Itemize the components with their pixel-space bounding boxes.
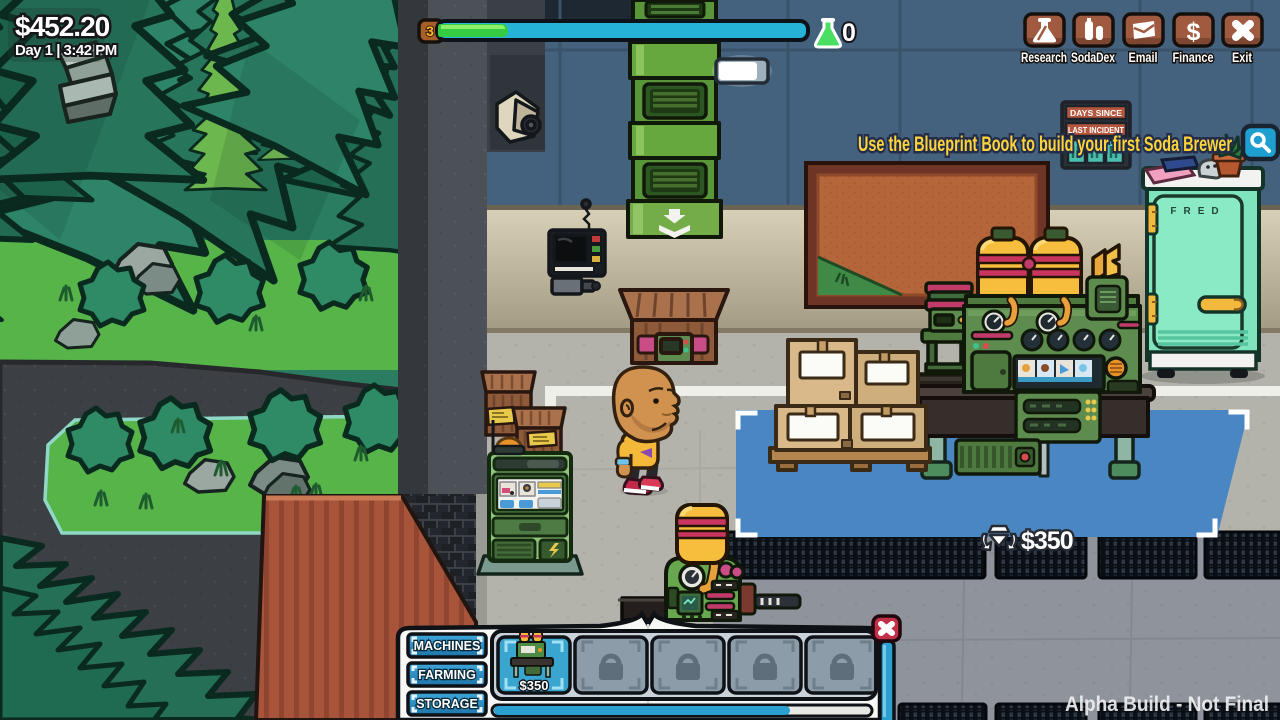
- svg-text:$: $: [1187, 18, 1201, 46]
- svg-text:Email: Email: [1129, 50, 1158, 65]
- svg-text:DAYS SINCE: DAYS SINCE: [1070, 108, 1122, 118]
- svg-text:0: 0: [842, 19, 856, 47]
- svg-text:MACHINES: MACHINES: [414, 639, 481, 653]
- svg-text:FRED: FRED: [1170, 206, 1225, 217]
- svg-text:Alpha Build - Not Final: Alpha Build - Not Final: [1065, 693, 1269, 716]
- svg-text:$350: $350: [520, 678, 549, 693]
- svg-text:FARMING: FARMING: [418, 668, 476, 682]
- svg-text:$452.20: $452.20: [15, 11, 110, 42]
- svg-text:$350: $350: [1021, 527, 1073, 555]
- svg-text:Day 1 | 3:42 PM: Day 1 | 3:42 PM: [15, 42, 117, 59]
- svg-text:SodaDex: SodaDex: [1071, 50, 1115, 65]
- svg-text:3: 3: [426, 23, 434, 39]
- svg-text:Exit: Exit: [1232, 50, 1252, 65]
- svg-text:Research: Research: [1021, 50, 1067, 65]
- svg-text:STORAGE: STORAGE: [416, 697, 478, 711]
- svg-text:Finance: Finance: [1173, 50, 1214, 65]
- svg-text:Use the Blueprint Book to buil: Use the Blueprint Book to build your fir…: [858, 133, 1232, 156]
